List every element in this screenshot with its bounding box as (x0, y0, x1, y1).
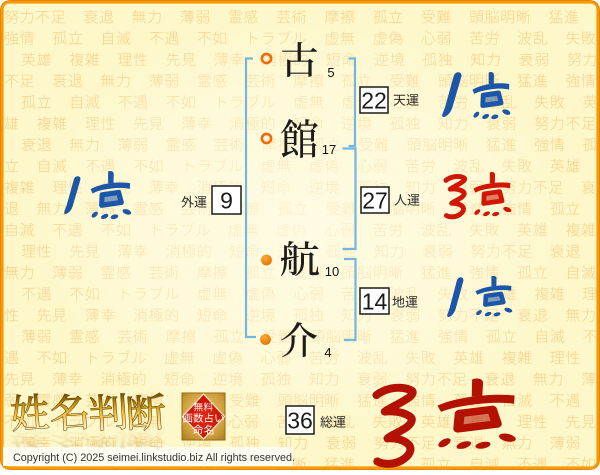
svg-text:9: 9 (220, 187, 233, 213)
svg-text:10: 10 (325, 264, 339, 279)
svg-text:Copyright (C) 2025 seimei.link: Copyright (C) 2025 seimei.linkstudio.biz… (13, 452, 295, 464)
svg-text:22: 22 (361, 87, 387, 113)
svg-text:4: 4 (324, 345, 331, 360)
svg-text:14: 14 (362, 288, 388, 314)
svg-text:36: 36 (287, 407, 313, 433)
svg-text:27: 27 (362, 187, 388, 213)
svg-text:5: 5 (327, 65, 334, 80)
svg-text:17: 17 (322, 142, 336, 157)
